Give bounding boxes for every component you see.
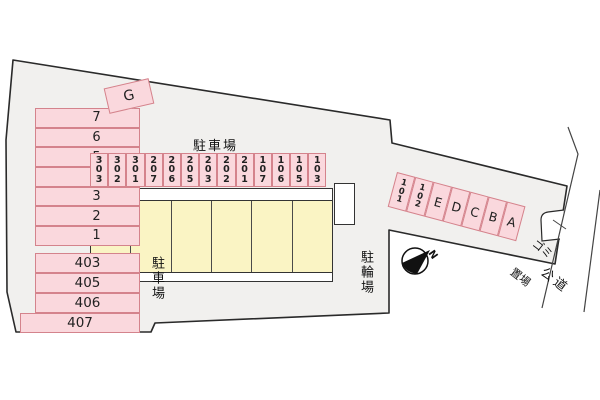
parking-lot-label-center: 駐車場 xyxy=(193,135,238,154)
parking-space-303: 303 xyxy=(90,153,108,187)
stairwell xyxy=(334,183,355,225)
parking-space-302: 302 xyxy=(108,153,126,187)
parking-space-407: 407 xyxy=(20,313,140,333)
site-plan: N 7654321 403405406407 30330230120720620… xyxy=(0,0,600,400)
parking-lot-label-left: 駐車場 xyxy=(147,256,166,301)
building-unit xyxy=(293,201,332,272)
parking-space-103: 103 xyxy=(308,153,326,187)
parking-space-205: 205 xyxy=(181,153,199,187)
north-compass-icon: N xyxy=(402,248,439,274)
parking-space-105: 105 xyxy=(290,153,308,187)
parking-space-106: 106 xyxy=(272,153,290,187)
building-unit xyxy=(172,201,212,272)
parking-space-406: 406 xyxy=(35,293,140,313)
parking-space-6: 6 xyxy=(35,128,140,148)
parking-space-201: 201 xyxy=(236,153,254,187)
parking-space-207: 207 xyxy=(145,153,163,187)
parking-space-301: 301 xyxy=(126,153,144,187)
main-parking-row: 303302301207206205203202201107106105103 xyxy=(90,153,326,187)
lower-parking-column: 403405406407 xyxy=(35,253,140,333)
road-right-edge xyxy=(584,190,600,312)
parking-space-403: 403 xyxy=(35,253,140,273)
parking-space-107: 107 xyxy=(254,153,272,187)
parking-space-1: 1 xyxy=(35,226,140,246)
parking-space-2: 2 xyxy=(35,206,140,226)
bicycle-parking-label: 駐輪場 xyxy=(356,250,375,295)
parking-space-405: 405 xyxy=(35,273,140,293)
parking-space-203: 203 xyxy=(199,153,217,187)
building-unit xyxy=(212,201,252,272)
building-unit xyxy=(252,201,292,272)
parking-space-3: 3 xyxy=(35,187,140,207)
parking-space-206: 206 xyxy=(163,153,181,187)
parking-space-202: 202 xyxy=(217,153,235,187)
parking-space-7: 7 xyxy=(35,108,140,128)
